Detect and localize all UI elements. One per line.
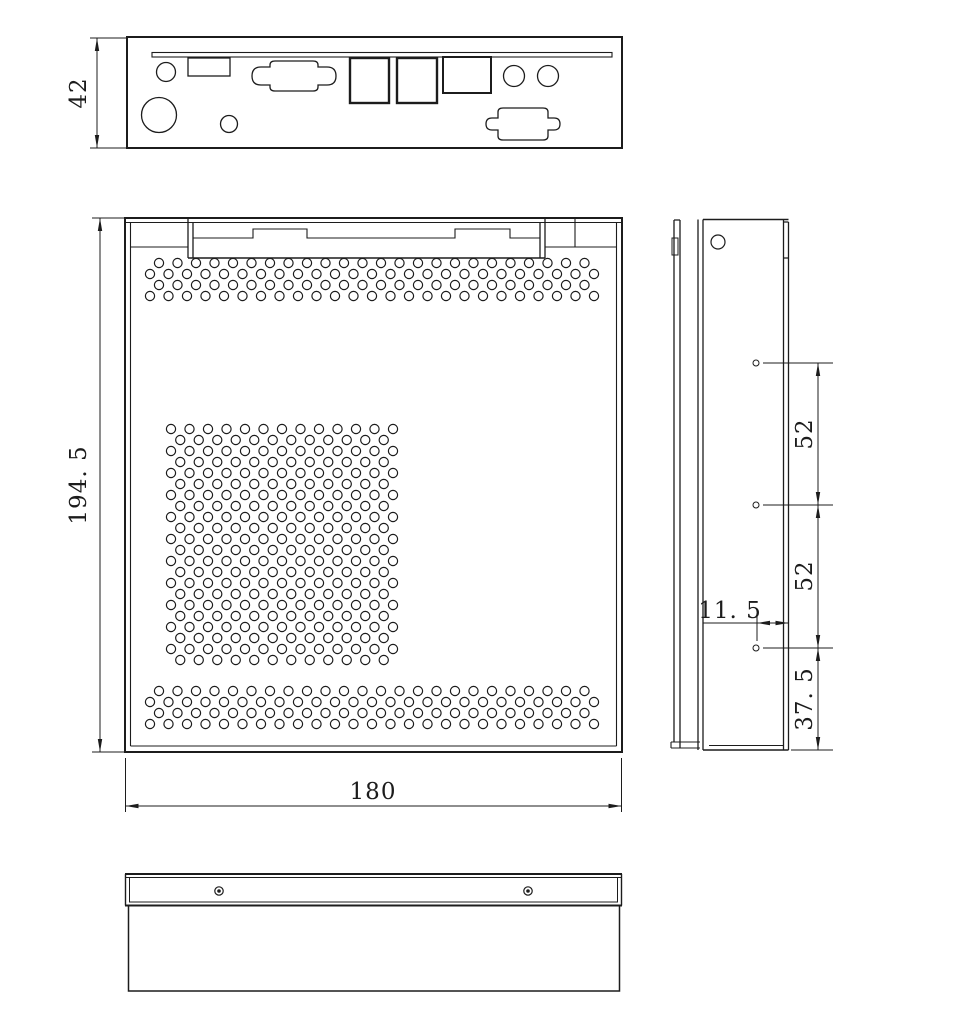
small-port-cutout: [188, 58, 230, 76]
side-view: [671, 220, 789, 751]
front-strip-inner-caps: [130, 878, 618, 903]
dim-cover-width: 180: [126, 758, 622, 812]
vent-block-center: [166, 424, 397, 664]
dim-375-arrow-up: [816, 648, 820, 661]
dim-375-label: 37. 5: [792, 667, 818, 731]
dim-180-label: 180: [350, 779, 397, 805]
dim-194-label: 194. 5: [66, 445, 92, 524]
dim-cover-length: 194. 5: [66, 218, 125, 752]
dim-42-arrow-down: [95, 135, 99, 148]
side-wall-fold: [698, 220, 703, 751]
dim-180-arrow-left: [126, 804, 139, 808]
dim-375-arrow-down: [816, 737, 820, 750]
vent-strip-top: [145, 258, 598, 300]
side-flange-notch: [672, 238, 678, 255]
dim-115-label: 11. 5: [698, 598, 762, 624]
mount-hole-3: [753, 645, 759, 651]
front-strip-outer-lines: [125, 874, 622, 906]
lan-port: [443, 57, 491, 93]
vga-connector-cutout: [252, 61, 336, 91]
usb-port-1: [350, 58, 389, 103]
serial-connector-cutout: [486, 108, 560, 140]
side-rear-wall: [784, 220, 789, 751]
reset-button-hole: [221, 116, 238, 133]
dim-52a-arrow-up: [816, 363, 820, 376]
side-top-hole: [711, 235, 725, 249]
chassis-multiview-drawing: 42 194. 5 180: [0, 0, 960, 1016]
dim-52-lower-label: 52: [792, 560, 818, 591]
audio-jack-2: [538, 66, 559, 87]
dim-52-upper-label: 52: [792, 418, 818, 449]
vent-strip-bottom: [145, 686, 598, 728]
engineering-drawing-sheet: 42 194. 5 180: [0, 0, 960, 1016]
power-jack-hole: [142, 98, 177, 133]
antenna-hole: [157, 63, 176, 82]
dim-52a-arrow-down: [816, 492, 820, 505]
mount-hole-2: [753, 502, 759, 508]
front-panel-body: [129, 906, 620, 992]
dim-42-lines: [90, 38, 127, 148]
dim-hole-to-edge: 11. 5: [698, 598, 788, 641]
side-front-flange: [674, 220, 680, 748]
dim-side-holes: 52 52 37. 5: [763, 363, 833, 750]
dim-194-arrow-up: [98, 218, 102, 231]
front-strip-inner-lines: [125, 878, 622, 903]
dim-52b-arrow-up: [816, 505, 820, 518]
rear-panel-top-bar: [152, 53, 612, 58]
dim-52b-arrow-down: [816, 635, 820, 648]
audio-jack-1: [504, 66, 525, 87]
front-screw-hole-2-center: [526, 889, 530, 893]
dim-rear-height: 42: [66, 38, 127, 148]
front-panel-view: [125, 874, 622, 991]
front-strip-end-caps: [126, 874, 622, 906]
front-screw-hole-1-center: [217, 889, 221, 893]
lid-latch-steps: [193, 229, 540, 238]
mount-hole-1: [753, 360, 759, 366]
dim-42-arrow-up: [95, 38, 99, 51]
usb-port-2: [397, 58, 437, 103]
side-flange-foot: [671, 742, 700, 748]
dim-180-arrow-right: [609, 804, 622, 808]
top-cover-view: [125, 218, 622, 752]
dim-194-lines: [92, 218, 125, 752]
cover-outline: [125, 218, 622, 752]
rear-panel-view: [127, 37, 622, 148]
dim-194-arrow-down: [98, 739, 102, 752]
dim-42-label: 42: [66, 77, 92, 108]
dim-115-arrow-right: [776, 621, 789, 625]
